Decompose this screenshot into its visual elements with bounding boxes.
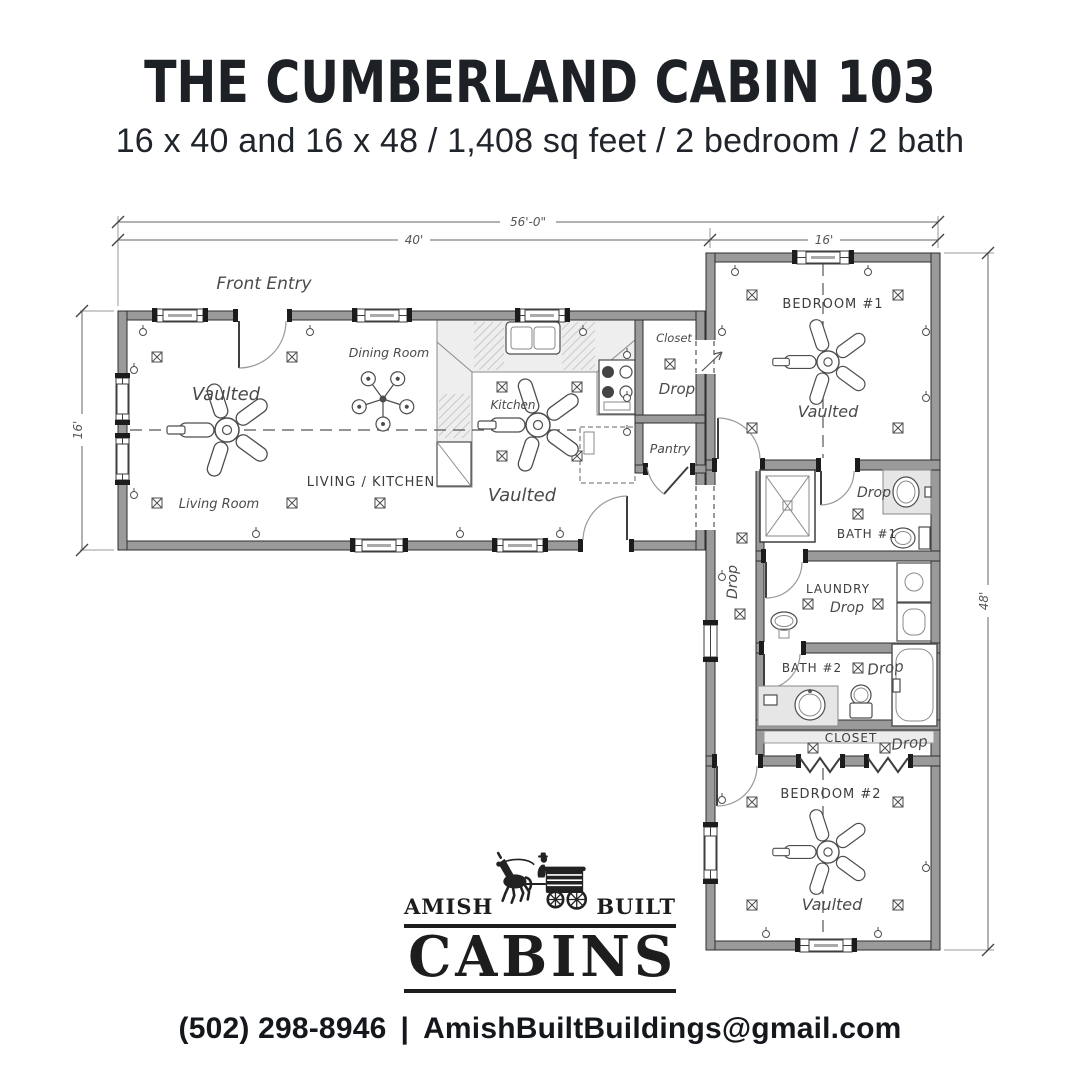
label-vaulted-bedroom2: Vaulted xyxy=(802,895,863,914)
footer-contact: (502) 298-8946|AmishBuiltBuildings@gmail… xyxy=(0,1012,1080,1046)
dryer xyxy=(897,603,931,641)
label-vaulted-living: Vaulted xyxy=(192,384,261,405)
kitchen-sink xyxy=(506,322,560,354)
rear-door xyxy=(578,496,634,552)
label-drop-bath2: Drop xyxy=(866,657,904,679)
logo-word-amish: AMISH xyxy=(404,894,493,922)
label-dining-room: Dining Room xyxy=(349,345,429,360)
label-drop-laundry: Drop xyxy=(830,600,864,616)
window xyxy=(115,433,130,485)
ceiling-fan-bedroom1 xyxy=(773,318,868,406)
laundry-door xyxy=(761,549,808,598)
horse-and-wagon-icon xyxy=(493,846,596,922)
label-vaulted-bedroom1: Vaulted xyxy=(798,402,859,421)
window xyxy=(492,538,548,552)
window xyxy=(152,308,208,322)
page: THE CUMBERLAND CABIN 103 16 x 40 and 16 … xyxy=(0,0,1080,1080)
window xyxy=(795,938,857,952)
laundry-sink xyxy=(771,612,797,638)
label-closet2: CLOSET xyxy=(825,731,878,745)
label-drop-bath1: Drop xyxy=(857,485,891,501)
bath1-door xyxy=(816,458,860,505)
bathtub xyxy=(892,644,937,726)
ceiling-fan-kitchen xyxy=(478,377,581,473)
amish-built-cabins-logo: AMISH xyxy=(404,846,676,993)
phone-number: (502) 298-8946 xyxy=(179,1012,387,1045)
dim-left-wing-depth: 16' xyxy=(71,421,85,440)
footer-separator: | xyxy=(400,1012,409,1045)
logo-top-row: AMISH xyxy=(404,846,676,922)
label-bedroom2: BEDROOM #2 xyxy=(780,787,881,802)
label-bath2: BATH #2 xyxy=(782,661,842,675)
dim-overall-width: 56'-0" xyxy=(510,215,546,229)
bath2-vanity xyxy=(758,686,838,726)
label-living-room: Living Room xyxy=(179,497,259,512)
stove xyxy=(599,360,635,414)
dim-right-wing-width: 16' xyxy=(815,233,834,247)
window xyxy=(792,250,854,264)
label-pantry: Pantry xyxy=(650,441,691,456)
email-address: AmishBuiltBuildings@gmail.com xyxy=(423,1012,901,1045)
window xyxy=(350,538,408,552)
shower xyxy=(760,470,815,542)
bath2-toilet xyxy=(850,685,872,718)
label-vaulted-kitchen: Vaulted xyxy=(488,485,557,506)
window xyxy=(515,308,570,322)
refrigerator xyxy=(437,442,471,486)
cased-opening-hall xyxy=(692,485,718,530)
label-bedroom1: BEDROOM #1 xyxy=(782,297,883,312)
dim-right-wing-depth: 48' xyxy=(977,592,991,611)
label-drop-hall: Drop xyxy=(725,565,741,599)
window xyxy=(703,620,718,662)
logo-word-cabins: CABINS xyxy=(408,928,672,987)
dim-left-wing-width: 40' xyxy=(405,233,424,247)
label-front-entry: Front Entry xyxy=(216,274,312,294)
svg-text:Drop: Drop xyxy=(725,565,741,599)
window xyxy=(352,308,412,322)
cased-opening-closet xyxy=(692,340,722,374)
label-laundry: LAUNDRY xyxy=(806,582,870,596)
dining-chandelier-icon xyxy=(350,369,415,431)
ceiling-fan-bedroom2 xyxy=(773,808,868,896)
label-drop-closet: Drop xyxy=(659,380,695,398)
label-living-kitchen: LIVING / KITCHEN xyxy=(307,475,436,490)
pantry-door xyxy=(643,463,695,494)
label-kitchen: Kitchen xyxy=(490,398,535,412)
window xyxy=(115,373,130,425)
label-bath1: BATH #1 xyxy=(837,527,897,541)
washer xyxy=(897,563,931,602)
front-entry-door xyxy=(233,309,292,368)
window xyxy=(703,822,718,884)
logo-word-built: BUILT xyxy=(596,894,676,922)
label-closet-top: Closet xyxy=(656,331,692,345)
label-drop-closet2: Drop xyxy=(890,732,928,754)
